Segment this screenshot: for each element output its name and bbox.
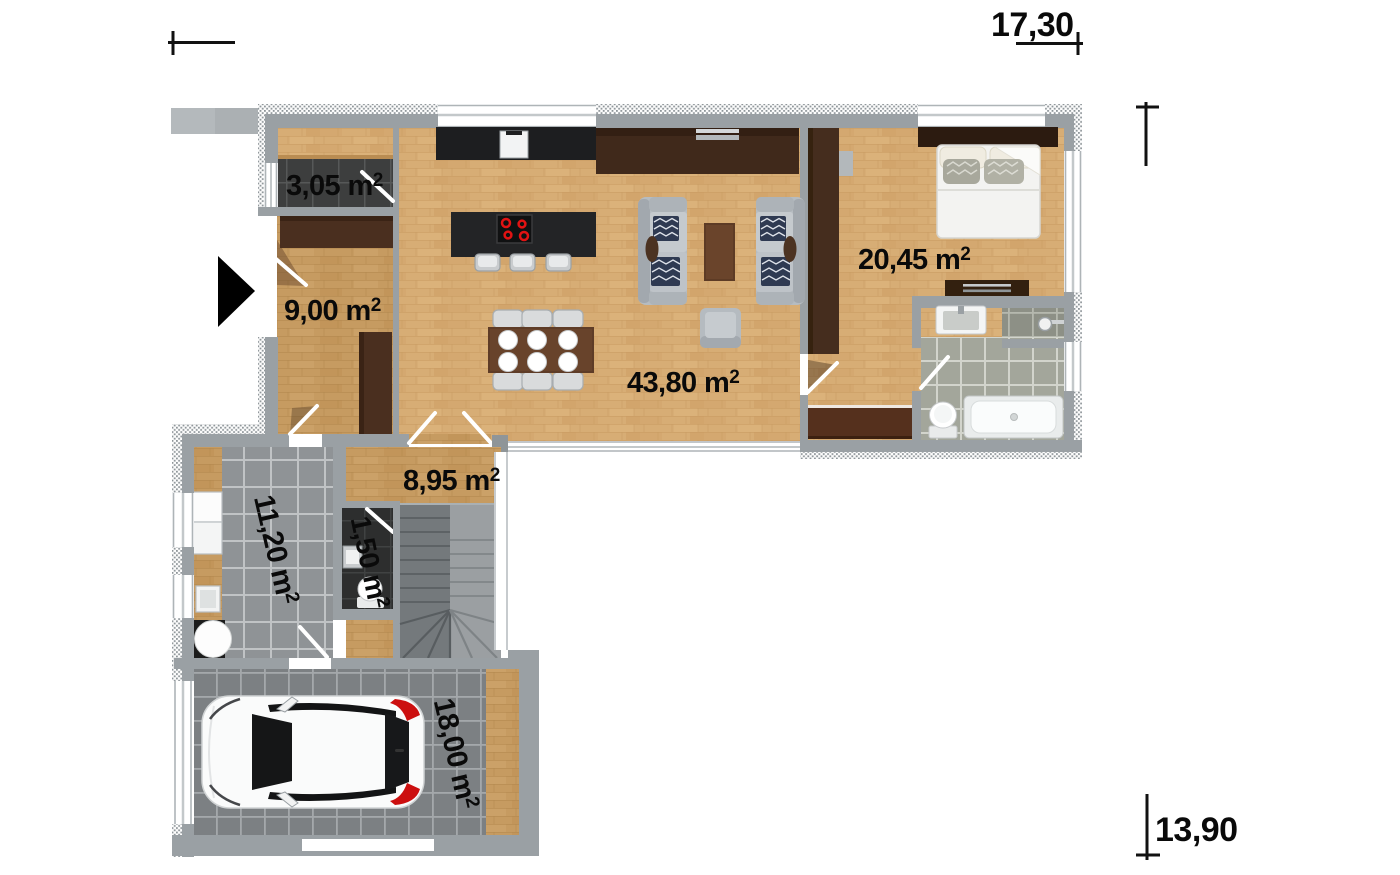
svg-text:17,30: 17,30 xyxy=(991,6,1074,44)
svg-text:13,90: 13,90 xyxy=(1155,811,1238,849)
svg-text:20,45 m2: 20,45 m2 xyxy=(858,244,970,276)
svg-text:8,95 m2: 8,95 m2 xyxy=(403,465,500,497)
svg-text:3,05 m2: 3,05 m2 xyxy=(286,170,383,202)
svg-text:43,80 m2: 43,80 m2 xyxy=(627,367,739,399)
svg-text:9,00 m2: 9,00 m2 xyxy=(284,295,381,327)
